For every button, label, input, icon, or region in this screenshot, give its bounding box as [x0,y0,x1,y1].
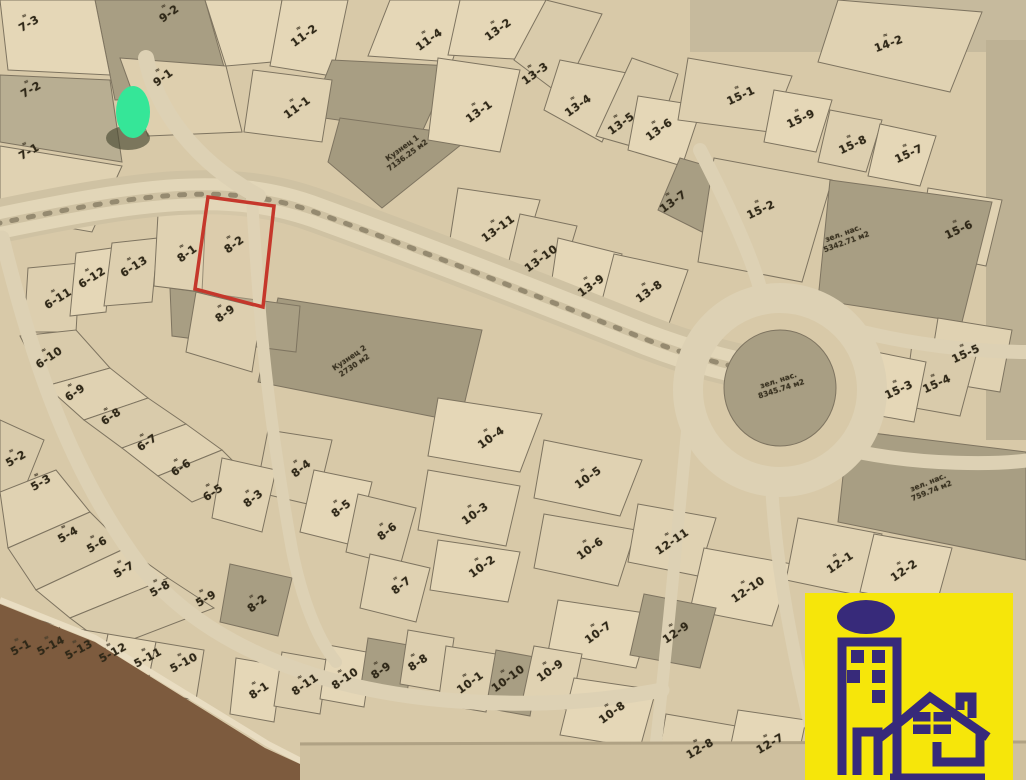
roundabout-island [724,330,836,446]
plot-map-photo: ≈7-3≈7-2≈7-1≈9-2≈9-1≈11-2≈11-4≈11-1≈13-2… [0,0,1026,780]
cadastral-map [0,0,1026,780]
realty-agency-logo [805,593,1013,780]
sun-ellipse-icon [837,600,895,634]
green-location-dot-icon [116,86,150,138]
highlighted-plot-outline [195,197,274,307]
